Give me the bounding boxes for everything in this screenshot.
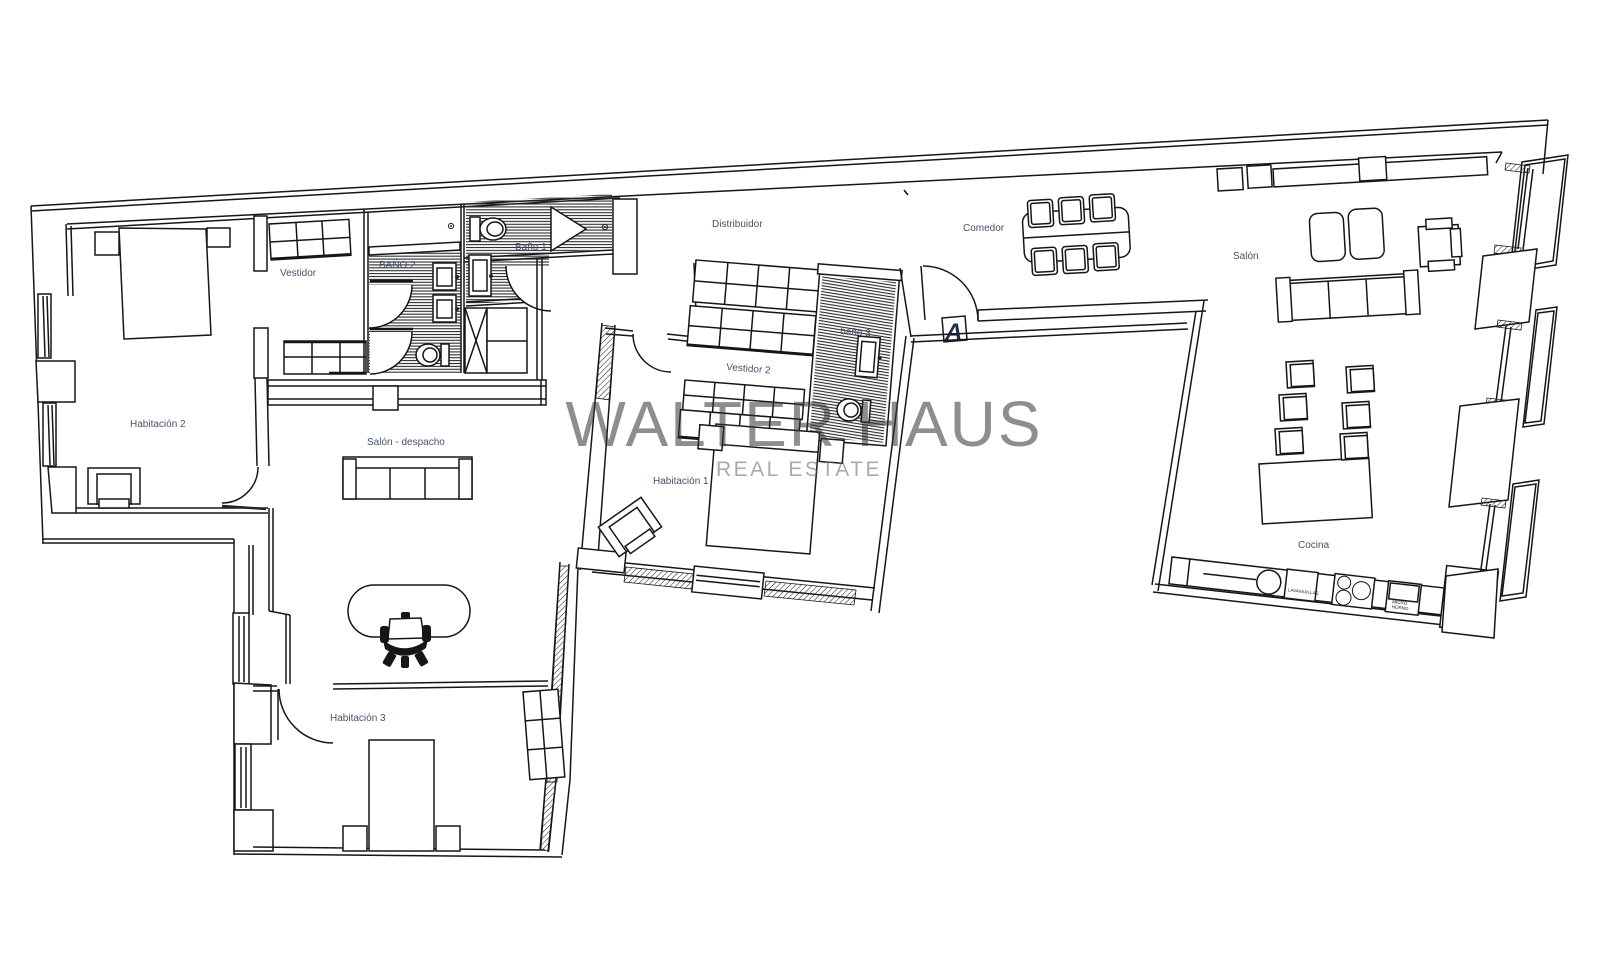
svg-text:REAL ESTATE: REAL ESTATE xyxy=(716,458,882,481)
svg-text:Habitación 2: Habitación 2 xyxy=(130,419,186,430)
svg-text:Comedor: Comedor xyxy=(963,223,1005,234)
svg-text:Vestidor: Vestidor xyxy=(280,268,317,279)
svg-text:Salón - despacho: Salón - despacho xyxy=(367,437,445,448)
svg-text:A: A xyxy=(944,319,962,346)
svg-text:Habitación 3: Habitación 3 xyxy=(330,713,386,724)
svg-text:BAÑO 2: BAÑO 2 xyxy=(379,258,416,271)
svg-text:Baño 1: Baño 1 xyxy=(515,242,547,253)
svg-text:WALTER HAUS: WALTER HAUS xyxy=(565,388,1042,460)
svg-text:Habitación 1: Habitación 1 xyxy=(653,476,709,487)
svg-text:Salón: Salón xyxy=(1233,251,1259,262)
svg-text:Distribuidor: Distribuidor xyxy=(712,219,763,230)
svg-text:Cocina: Cocina xyxy=(1298,540,1330,551)
